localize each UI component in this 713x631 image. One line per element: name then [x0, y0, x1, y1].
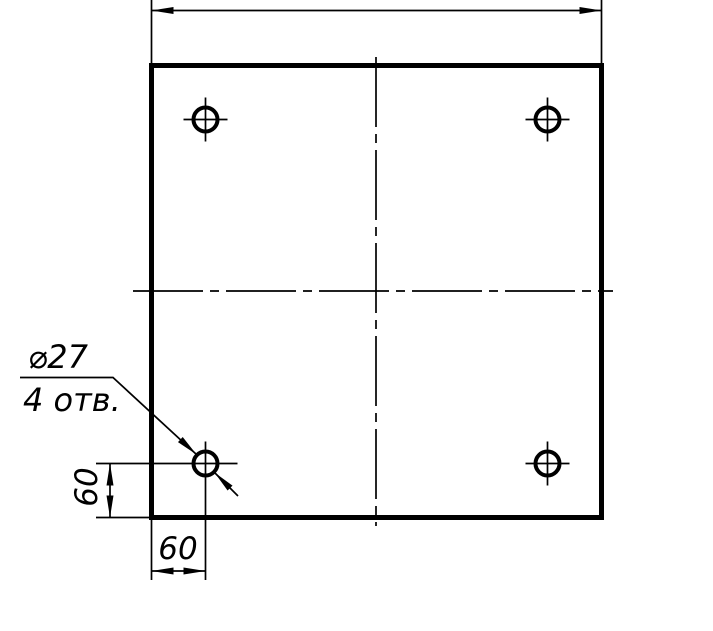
arrowhead-right	[580, 7, 602, 14]
dimension-top-width	[152, 0, 602, 63]
callout-hole-count-text: 4 отв.	[23, 381, 121, 419]
arrowhead-left	[152, 568, 174, 575]
hole-top-left	[184, 98, 228, 142]
dimension-bottom-60-label: 60	[158, 531, 197, 567]
engineering-drawing-canvas: 60 60 ⌀27 4 отв.	[0, 0, 713, 631]
dimension-left-60-label: 60	[69, 467, 105, 506]
hole-bottom-right	[526, 442, 570, 486]
arrowhead-top	[107, 464, 114, 486]
arrowhead-bottom	[107, 496, 114, 518]
arrowhead-left	[152, 7, 174, 14]
dimension-bottom-60: 60	[152, 520, 206, 580]
arrowhead-right	[184, 568, 206, 575]
dimension-left-60: 60	[69, 464, 152, 518]
leader-arrowhead-lower	[212, 470, 233, 491]
drawing-area: 60 60 ⌀27 4 отв.	[0, 0, 713, 631]
hole-top-right	[526, 98, 570, 142]
callout-diameter-text: ⌀27	[28, 338, 89, 376]
